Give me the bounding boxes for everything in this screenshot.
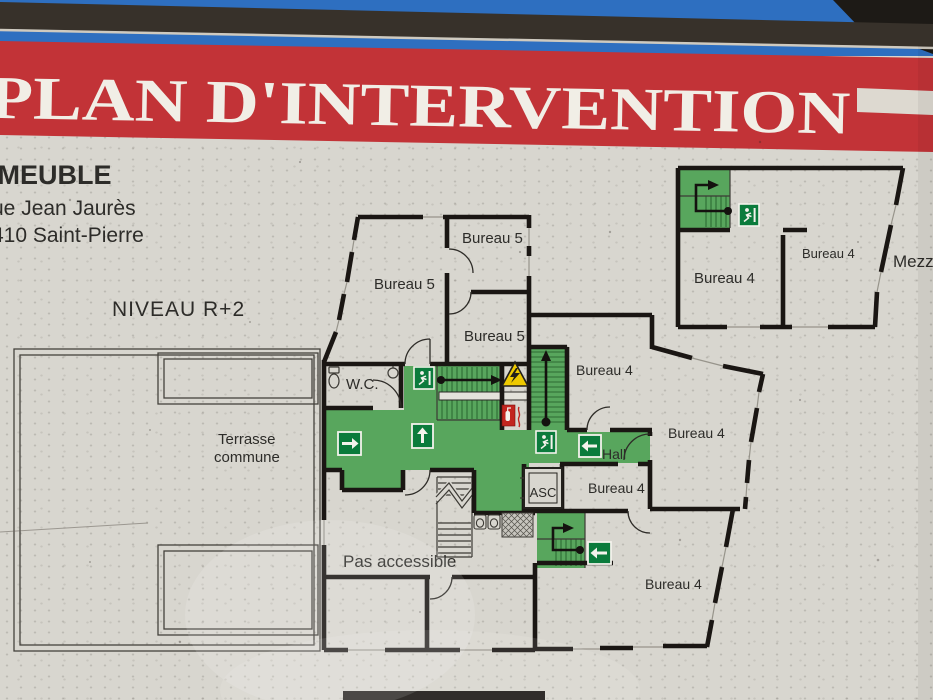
exit-arrow-left-sign-bottom [588, 542, 611, 564]
room-label-bureau4-top: Bureau 4 [576, 362, 633, 378]
exit-arrow-right-sign [338, 432, 361, 455]
mezz-label-bureau4-right: Bureau 4 [802, 246, 855, 261]
elevator-label: ASC [530, 485, 557, 500]
room-label-bureau4-right: Bureau 4 [668, 425, 725, 441]
room-label-bureau4-bottom: Bureau 4 [645, 576, 702, 592]
room-label-bureau4-small: Bureau 4 [588, 480, 645, 496]
address-line3: 410 Saint-Pierre [0, 224, 144, 247]
terrace-label-line2: commune [214, 449, 280, 466]
exit-arrow-up-sign [412, 424, 433, 448]
exit-man-sign-corridor [414, 367, 434, 389]
hatched-area [502, 513, 533, 537]
level-label: NIVEAU R+2 [112, 298, 245, 321]
room-label-bureau5-top: Bureau 5 [462, 230, 523, 247]
exit-man-sign-mezzanine [739, 204, 759, 226]
address-line1: IMEUBLE [0, 160, 112, 190]
room-label-hall: Hall [602, 446, 626, 462]
intervention-plan-photo: PLAN D'INTERVENTION IMEUBLE ue Jean Jaur… [0, 0, 933, 700]
sink-icon [388, 366, 398, 378]
plan-canvas: PLAN D'INTERVENTION IMEUBLE ue Jean Jaur… [0, 0, 933, 700]
room-label-bureau5-left: Bureau 5 [374, 276, 435, 293]
washbasins-icon [474, 515, 500, 529]
room-label-bureau5-mid: Bureau 5 [464, 328, 525, 345]
exit-man-sign-stair [536, 431, 556, 453]
mezz-label-bureau4-left: Bureau 4 [694, 270, 755, 287]
stair-not-accessible [436, 477, 473, 557]
exit-arrow-left-sign-hall [579, 435, 601, 457]
toilet-icon [329, 367, 339, 388]
room-label-wc: W.C. [346, 376, 379, 393]
extinguisher-icon [502, 405, 520, 427]
address-line2: ue Jean Jaurès [0, 197, 136, 220]
terrace-label-line1: Terrasse [218, 431, 276, 448]
